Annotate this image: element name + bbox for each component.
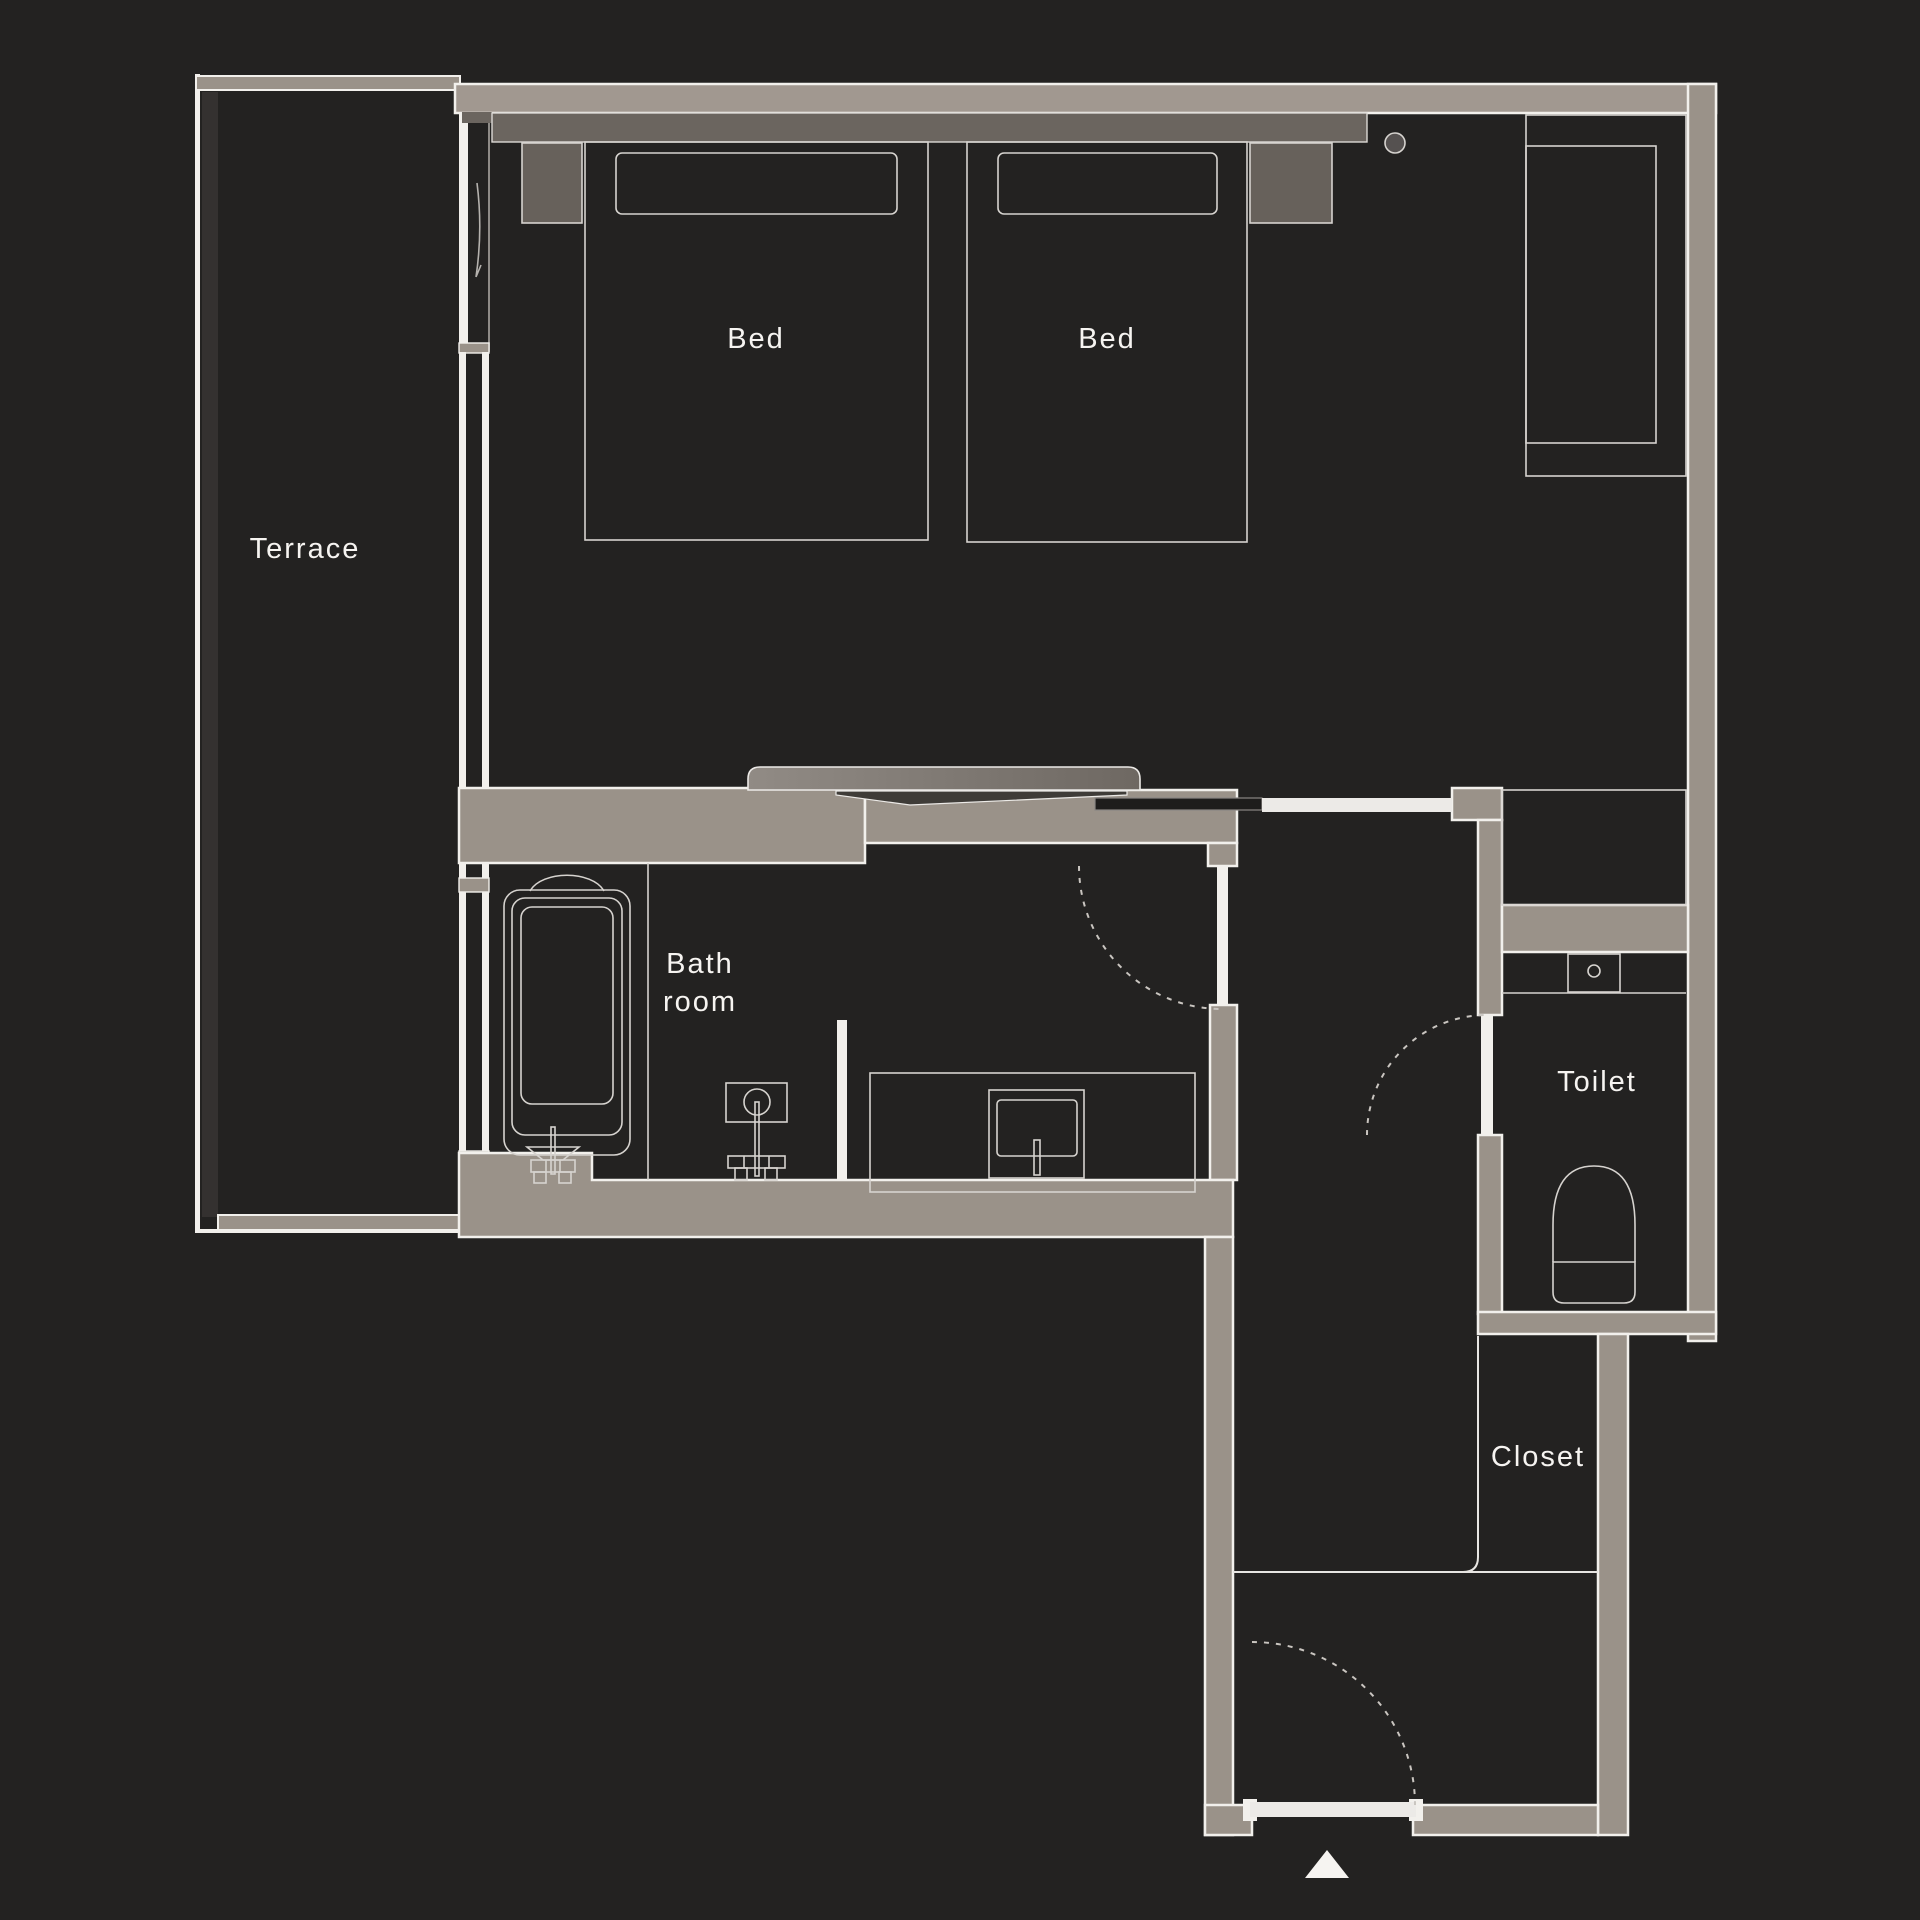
toilet-bowl: [1553, 1166, 1635, 1262]
wash-basin-outer: [989, 1090, 1084, 1178]
wash-basin-drain: [1034, 1140, 1040, 1175]
bath-partition-wall: [837, 1020, 847, 1180]
room-labels: Terrace Bed Bed Bath room Toilet Closet: [250, 323, 1637, 1473]
bathroom-label-line1: Bath: [666, 948, 734, 980]
vanity-room: [870, 1073, 1195, 1192]
wall-toilet-west-lower: [1478, 1135, 1502, 1314]
terrace-left-band: [202, 92, 218, 1217]
headboard-step: [462, 112, 492, 123]
toilet-sink-faucet: [1588, 965, 1600, 977]
toilet-door-leaf: [1481, 1015, 1493, 1135]
ceiling-light-icon: [1385, 133, 1405, 153]
floor-plan: Terrace Bed Bed Bath room Toilet Closet: [0, 0, 1920, 1920]
wall-toilet-south: [1478, 1312, 1716, 1334]
corridor-entry: [1233, 1336, 1598, 1878]
wash-basin-inner: [997, 1100, 1077, 1156]
wall-toilet-west-upper: [1478, 820, 1502, 1015]
sliding-door-pocket: [1095, 798, 1262, 810]
toilet-tank: [1553, 1262, 1635, 1303]
window-swing-line: [476, 183, 481, 277]
bed-right-label: Bed: [1078, 323, 1136, 355]
entry-arrow-icon: [1305, 1850, 1349, 1878]
toilet-door-swing-arc: [1367, 1015, 1487, 1135]
window-glass-lower-a: [459, 352, 466, 1218]
wall-vanity-corridor: [1210, 1005, 1237, 1180]
desk-counter: [1526, 115, 1686, 476]
toilet-sink: [1568, 954, 1620, 992]
shower-foot-left: [735, 1168, 747, 1180]
bed-left-label: Bed: [727, 323, 785, 355]
entry-door-swing-arc: [1252, 1642, 1415, 1805]
storage-niche: [1502, 790, 1686, 905]
nightstand-left: [522, 143, 582, 223]
terrace-outer-wall-left: [195, 74, 200, 1233]
nightstand-right: [1250, 143, 1332, 223]
bathroom: [504, 863, 787, 1183]
wall-right: [1688, 84, 1716, 1341]
wall-corridor-ne-corner: [1452, 788, 1502, 820]
bedroom-corridor-threshold: [1262, 798, 1452, 812]
terrace: [195, 74, 490, 1233]
vanity-counter: [870, 1073, 1195, 1192]
terrace-parapet-bottom: [218, 1215, 490, 1230]
toilet-room: [1502, 954, 1686, 1303]
wall-top: [455, 84, 1716, 113]
bed-right-pillow: [998, 153, 1217, 214]
vanity-door-leaf: [1217, 866, 1228, 1005]
wall-closet-east: [1598, 1334, 1628, 1835]
wall-toilet-north: [1502, 905, 1688, 952]
bathroom-label-line2: room: [663, 986, 737, 1018]
shower-foot-right: [765, 1168, 777, 1180]
window-glass-lower-b: [482, 352, 489, 1218]
window-wall: [459, 113, 490, 1218]
closet-label: Closet: [1491, 1441, 1585, 1473]
window-frame-line: [488, 113, 490, 352]
bathtub-headrest: [530, 875, 604, 891]
bathtub: [504, 890, 630, 1155]
shower-stem: [755, 1102, 759, 1176]
entry-door-threshold: [1250, 1802, 1416, 1817]
bed-left-pillow: [616, 153, 897, 214]
doors-openings: [837, 798, 1493, 1821]
shower-mixer: [726, 1083, 787, 1180]
toilet-label: Toilet: [1557, 1066, 1637, 1098]
terrace-outer-wall-bottom: [195, 1229, 490, 1233]
bathtub-inner-2: [521, 907, 613, 1104]
vanity-door-swing-arc: [1079, 866, 1222, 1009]
desk-counter-inner: [1526, 146, 1656, 443]
wall-entry-west: [1205, 1237, 1233, 1835]
window-mullion-2: [459, 878, 489, 892]
shower-bar: [728, 1156, 785, 1168]
floor-plan-svg: Terrace Bed Bed Bath room Toilet Closet: [0, 0, 1920, 1920]
tv-console: [748, 767, 1140, 790]
window-mullion-1: [459, 343, 489, 353]
bathtub-inner: [512, 898, 622, 1135]
headboard-panel: [492, 113, 1367, 142]
wall-vanity-corner: [1208, 843, 1237, 866]
closet-edge-line: [1463, 1336, 1478, 1572]
wall-entry-south-right: [1413, 1805, 1598, 1835]
window-glass-upper: [459, 113, 468, 352]
terrace-parapet-top: [196, 76, 460, 90]
wall-bath-north: [459, 788, 865, 863]
terrace-label: Terrace: [250, 533, 361, 565]
